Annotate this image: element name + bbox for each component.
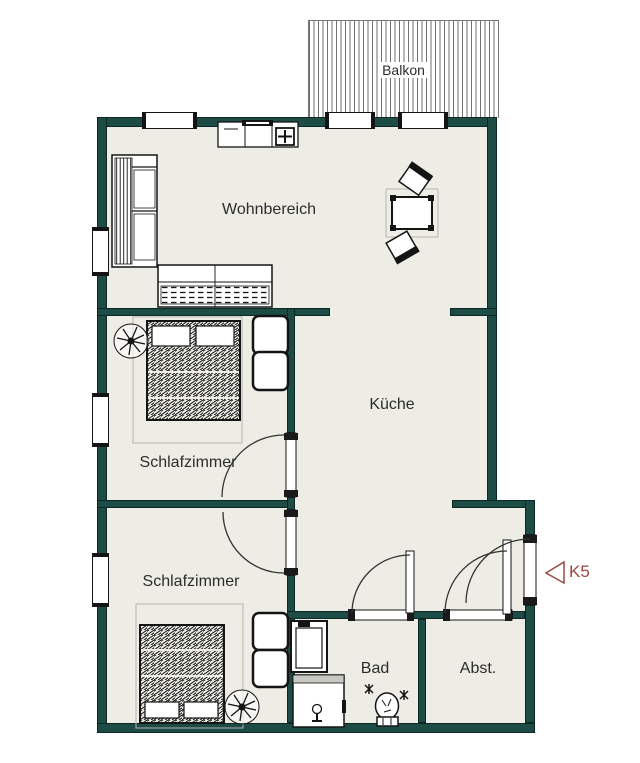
room-label-schlafzimmer-oben: Schlafzimmer <box>140 454 237 472</box>
room-label-abstellraum: Abst. <box>460 660 496 678</box>
window-left-2 <box>92 393 109 447</box>
wall-vertical-lower <box>287 575 295 723</box>
window-top-left <box>142 112 197 129</box>
wall-living-kitchen-left <box>97 308 330 316</box>
entry-marker-label: K5 <box>569 562 590 582</box>
room-label-wohnbereich: Wohnbereich <box>222 201 316 219</box>
wall-living-kitchen-right <box>450 308 497 316</box>
wall-hall-bottom-2 <box>412 611 445 619</box>
room-label-schlafzimmer-unten: Schlafzimmer <box>143 573 240 591</box>
balcony-area: Balkon <box>308 20 499 118</box>
window-balcony-2 <box>398 112 448 129</box>
window-balcony-1 <box>325 112 375 129</box>
window-left-1 <box>92 227 109 276</box>
wall-right-lower-2 <box>525 605 535 723</box>
floor-plan: Balkon <box>0 0 640 763</box>
wall-vertical-upper <box>287 308 295 433</box>
wall-bottom <box>97 723 535 733</box>
room-label-balkon: Balkon <box>379 62 428 78</box>
wall-hall-bottom-1 <box>287 611 350 619</box>
room-label-bad: Bad <box>361 660 389 678</box>
window-left-3 <box>92 553 109 607</box>
room-label-kueche: Küche <box>369 396 414 414</box>
wall-vertical-middle <box>287 497 295 510</box>
wall-bad-abst-divider <box>418 619 426 723</box>
wall-hall-top <box>452 500 535 508</box>
entry-marker-arrow-icon <box>546 562 564 583</box>
wall-hall-bottom-3 <box>512 611 525 619</box>
wall-right-lower-1 <box>525 500 535 535</box>
wall-bedroom-divider <box>97 500 295 508</box>
